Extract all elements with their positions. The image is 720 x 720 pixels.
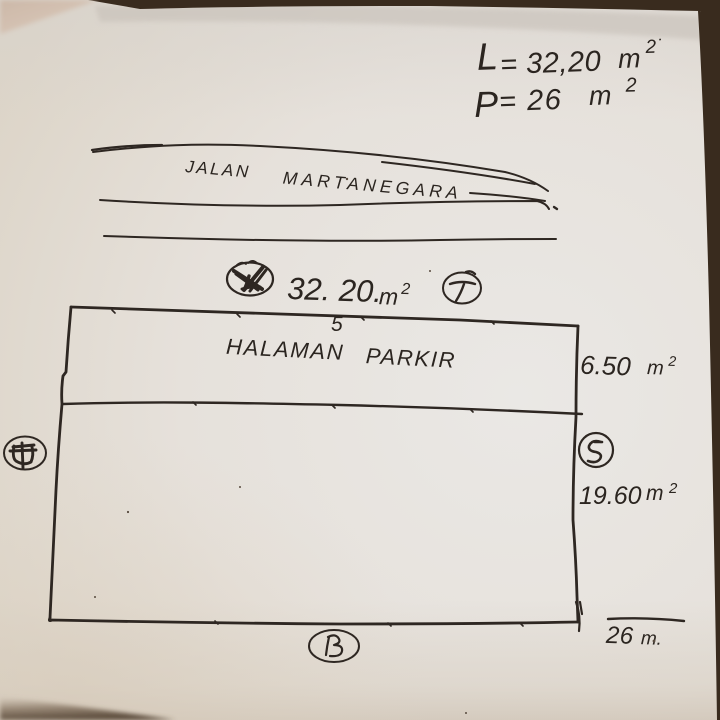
svg-text:= 32,20: = 32,20 [500, 46, 602, 82]
svg-text:L: L [476, 36, 499, 79]
svg-text:2: 2 [400, 281, 411, 298]
svg-text:6.50: 6.50 [580, 350, 632, 382]
svg-text:32. 20.: 32. 20. [287, 271, 383, 309]
svg-text:5: 5 [331, 313, 343, 336]
svg-text:2˙: 2˙ [644, 36, 663, 58]
svg-text:19.60: 19.60 [579, 482, 642, 510]
svg-text:2: 2 [668, 480, 678, 497]
svg-text:m: m [647, 357, 664, 380]
svg-text:m.: m. [641, 628, 663, 650]
svg-text:m: m [379, 283, 399, 310]
svg-text:= 26: = 26 [498, 84, 562, 118]
svg-text:P: P [473, 83, 498, 125]
svg-text:26: 26 [605, 622, 635, 650]
svg-text:2: 2 [624, 74, 637, 96]
svg-text:m: m [617, 43, 641, 74]
svg-text:m: m [588, 80, 612, 111]
svg-text:m: m [646, 482, 664, 505]
svg-text:2: 2 [667, 353, 677, 369]
svg-text:PARKIR: PARKIR [365, 343, 457, 373]
